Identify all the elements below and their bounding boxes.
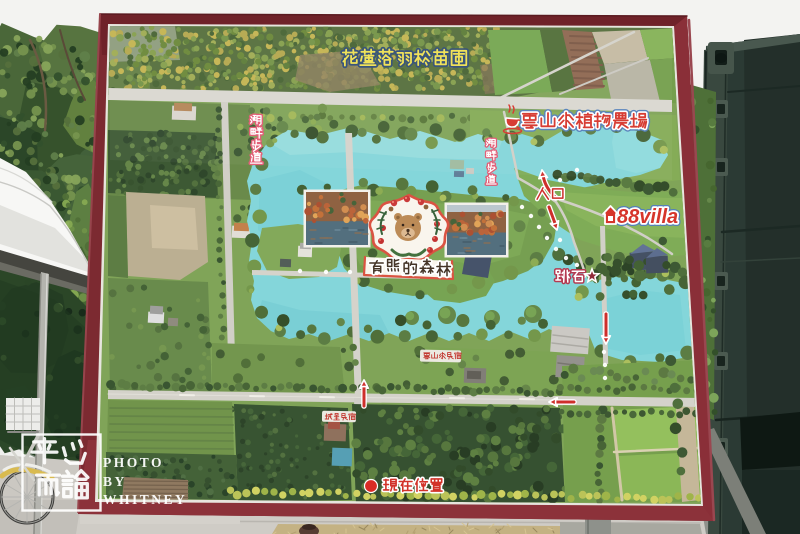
svg-text:WHITNEY: WHITNEY xyxy=(103,492,187,507)
svg-text:PHOTO: PHOTO xyxy=(103,455,164,470)
svg-text:BY: BY xyxy=(103,474,127,489)
